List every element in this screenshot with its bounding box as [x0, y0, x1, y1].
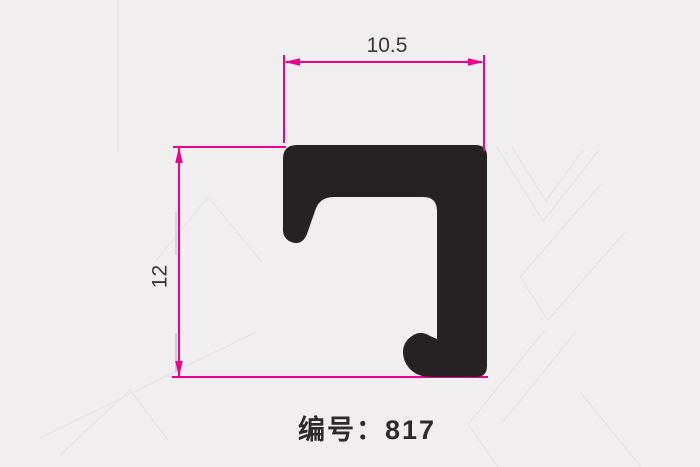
height-dimension-lines — [173, 147, 286, 377]
profile-drawing-canvas: 10.5 12 编号：817 — [0, 0, 700, 467]
width-dimension-label: 10.5 — [347, 35, 427, 56]
profile-drawing — [0, 0, 700, 467]
part-number-label: 编号：817 — [250, 408, 484, 447]
profile-shape — [283, 145, 487, 377]
height-dimension-label: 12 — [150, 256, 171, 298]
watermark-pattern — [40, 0, 641, 467]
width-dimension-lines — [284, 55, 484, 151]
